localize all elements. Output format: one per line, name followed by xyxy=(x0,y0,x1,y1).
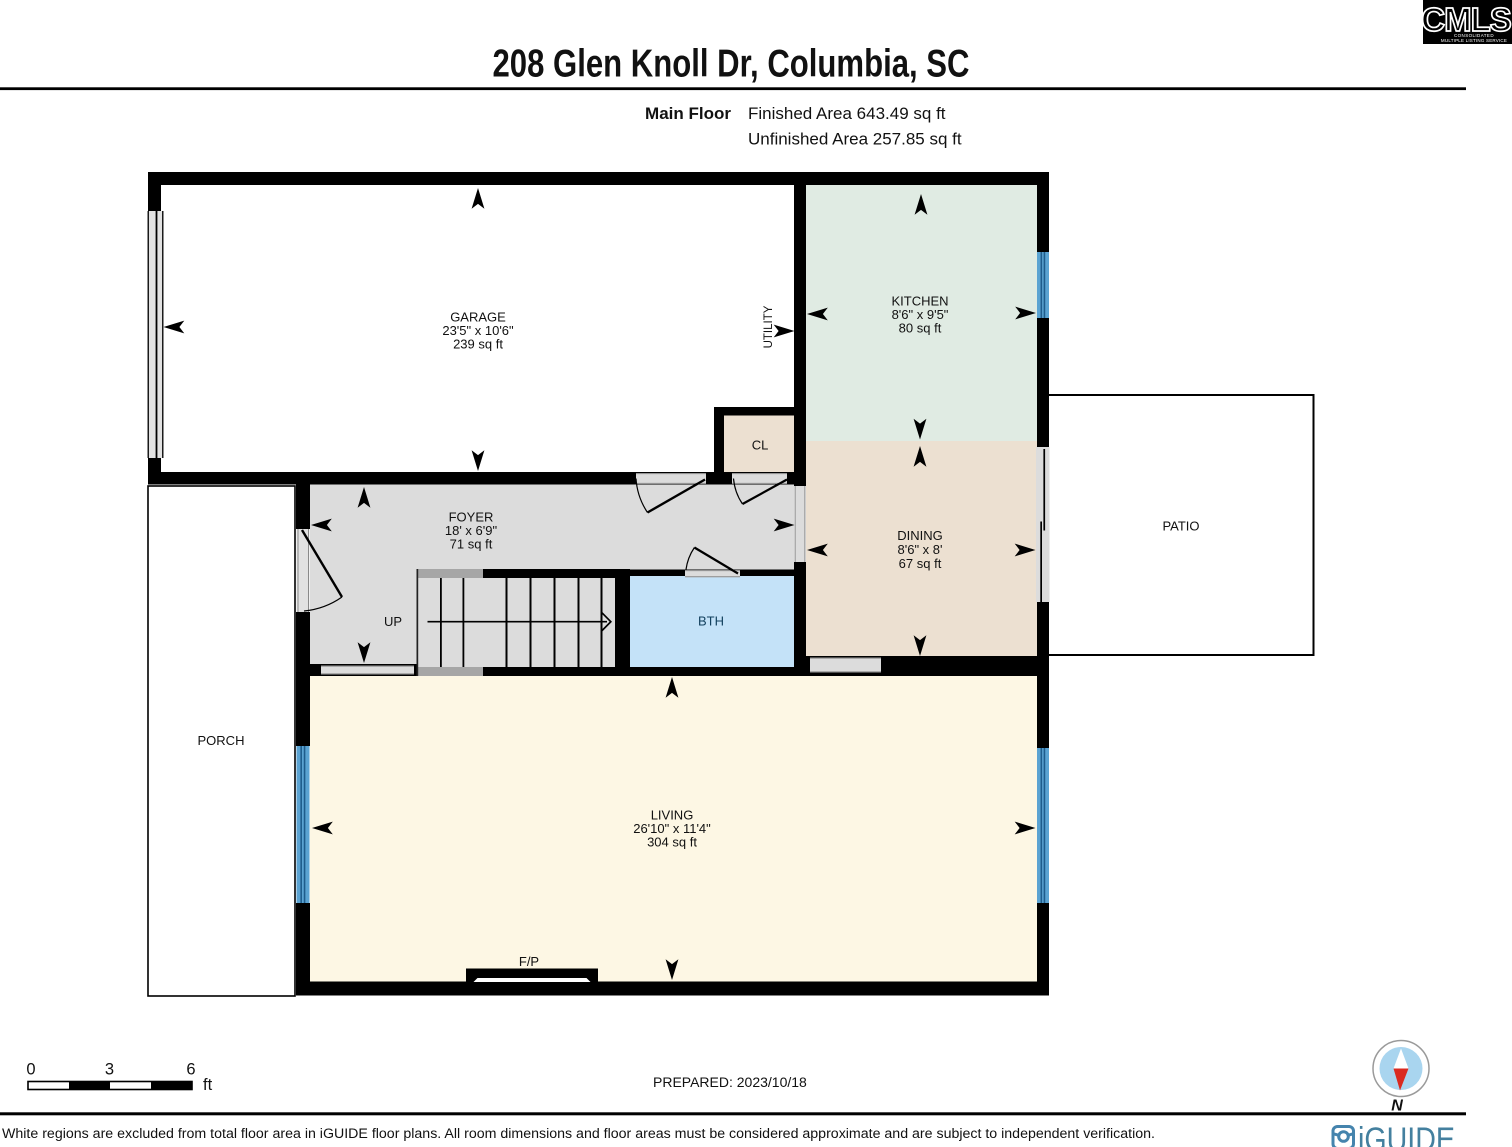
svg-text:8'6" x 8': 8'6" x 8' xyxy=(898,542,943,557)
svg-text:6: 6 xyxy=(186,1061,195,1079)
svg-text:ft: ft xyxy=(203,1076,213,1094)
svg-text:BTH: BTH xyxy=(698,614,724,629)
svg-text:iGUIDE: iGUIDE xyxy=(1358,1121,1455,1147)
svg-text:PATIO: PATIO xyxy=(1162,519,1199,534)
svg-text:CL: CL xyxy=(752,438,769,453)
svg-text:PREPARED: 2023/10/18: PREPARED: 2023/10/18 xyxy=(653,1074,807,1090)
svg-text:N: N xyxy=(1391,1098,1403,1115)
svg-text:304 sq ft: 304 sq ft xyxy=(647,835,697,850)
svg-text:Unfinished Area 257.85 sq ft: Unfinished Area 257.85 sq ft xyxy=(748,130,962,149)
svg-text:White regions are excluded fro: White regions are excluded from total fl… xyxy=(2,1126,1155,1142)
svg-text:F/P: F/P xyxy=(519,954,539,969)
svg-text:71 sq ft: 71 sq ft xyxy=(450,537,493,552)
svg-text:DINING: DINING xyxy=(897,528,943,543)
svg-text:Main Floor: Main Floor xyxy=(645,104,731,123)
svg-text:MULTIPLE LISTING SERVICE: MULTIPLE LISTING SERVICE xyxy=(1441,38,1507,43)
svg-text:PORCH: PORCH xyxy=(198,733,245,748)
svg-text:UTILITY: UTILITY xyxy=(763,305,775,348)
svg-text:208 Glen Knoll Dr, Columbia, S: 208 Glen Knoll Dr, Columbia, SC xyxy=(493,43,970,86)
svg-text:80 sq ft: 80 sq ft xyxy=(899,321,942,336)
svg-text:UP: UP xyxy=(384,614,402,629)
svg-text:67 sq ft: 67 sq ft xyxy=(899,556,942,571)
svg-text:239 sq ft: 239 sq ft xyxy=(453,337,503,352)
svg-text:3: 3 xyxy=(105,1061,114,1079)
svg-text:0: 0 xyxy=(26,1061,35,1079)
svg-text:Finished Area 643.49 sq ft: Finished Area 643.49 sq ft xyxy=(748,104,946,123)
